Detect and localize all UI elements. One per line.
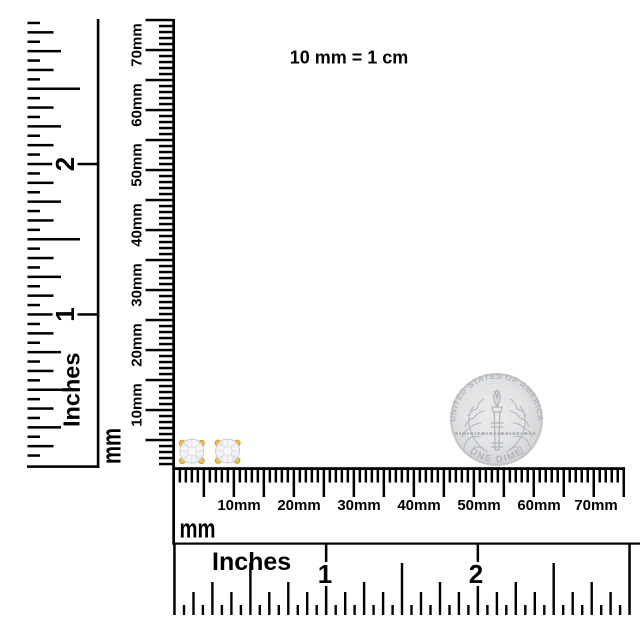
svg-text:2: 2 xyxy=(50,157,80,171)
svg-text:30mm: 30mm xyxy=(129,263,146,306)
svg-text:mm: mm xyxy=(97,428,127,464)
svg-text:50mm: 50mm xyxy=(457,497,500,514)
svg-text:10mm: 10mm xyxy=(217,497,260,514)
svg-text:mm: mm xyxy=(180,514,216,544)
svg-text:20mm: 20mm xyxy=(129,323,146,366)
svg-text:Inches: Inches xyxy=(212,548,291,576)
svg-text:70mm: 70mm xyxy=(129,23,146,66)
svg-text:1: 1 xyxy=(50,307,80,321)
svg-text:10 mm = 1 cm: 10 mm = 1 cm xyxy=(290,48,409,68)
svg-text:2: 2 xyxy=(469,559,483,589)
svg-text:40mm: 40mm xyxy=(397,497,440,514)
svg-text:60mm: 60mm xyxy=(129,83,146,126)
svg-text:60mm: 60mm xyxy=(517,497,560,514)
svg-text:20mm: 20mm xyxy=(277,497,320,514)
svg-text:1: 1 xyxy=(318,559,332,589)
svg-text:Inches: Inches xyxy=(59,353,85,427)
svg-text:70mm: 70mm xyxy=(574,497,617,514)
svg-text:50mm: 50mm xyxy=(129,143,146,186)
svg-text:10mm: 10mm xyxy=(129,383,146,426)
svg-text:30mm: 30mm xyxy=(337,497,380,514)
svg-text:40mm: 40mm xyxy=(129,203,146,246)
